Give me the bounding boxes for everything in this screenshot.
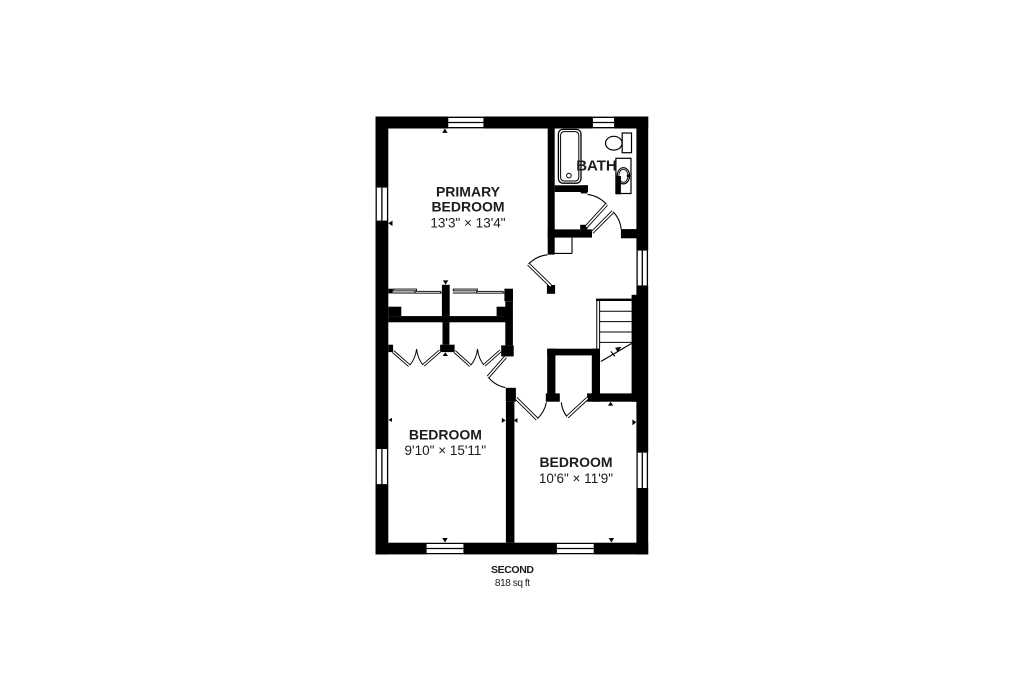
svg-text:BEDROOM: BEDROOM (409, 426, 482, 442)
svg-text:BEDROOM: BEDROOM (431, 198, 504, 214)
svg-text:SECOND: SECOND (491, 564, 534, 576)
svg-text:BEDROOM: BEDROOM (539, 454, 612, 470)
svg-text:10'6" × 11'9": 10'6" × 11'9" (539, 471, 613, 486)
svg-text:9'10" × 15'11": 9'10" × 15'11" (405, 443, 487, 458)
svg-text:BATH: BATH (576, 157, 617, 174)
svg-text:818 sq ft: 818 sq ft (495, 578, 530, 589)
svg-text:13'3" × 13'4": 13'3" × 13'4" (430, 216, 505, 231)
svg-text:PRIMARY: PRIMARY (436, 184, 501, 200)
